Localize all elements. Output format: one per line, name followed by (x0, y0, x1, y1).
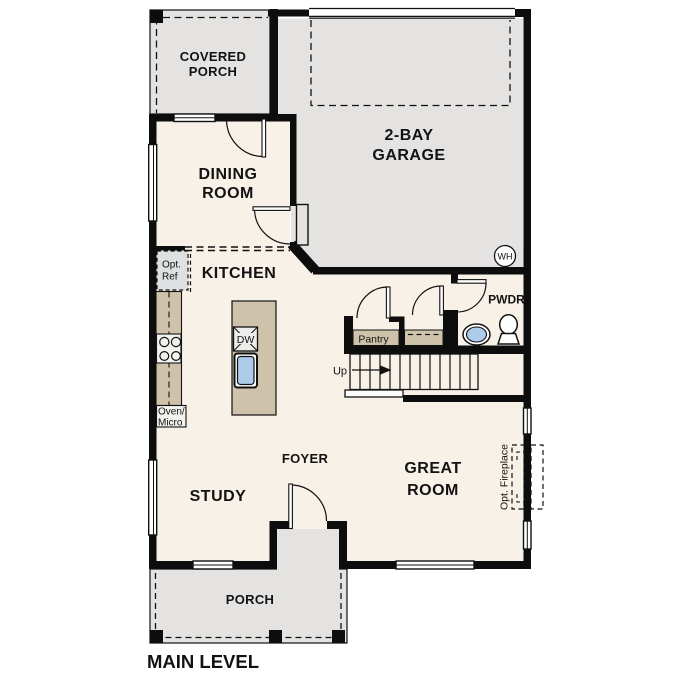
svg-text:COVERED: COVERED (180, 49, 246, 64)
svg-text:2-BAY: 2-BAY (384, 127, 433, 144)
svg-text:Pantry: Pantry (358, 334, 389, 346)
svg-text:Opt. Fireplace: Opt. Fireplace (499, 444, 511, 510)
svg-text:Up: Up (333, 366, 347, 378)
svg-text:STUDY: STUDY (190, 488, 247, 505)
svg-text:PORCH: PORCH (226, 592, 274, 607)
svg-text:Ref: Ref (162, 272, 178, 283)
svg-text:Opt.: Opt. (162, 260, 181, 271)
svg-text:GREAT: GREAT (404, 460, 461, 477)
svg-text:GARAGE: GARAGE (372, 147, 445, 164)
svg-text:KITCHEN: KITCHEN (202, 265, 277, 282)
svg-text:ROOM: ROOM (202, 185, 254, 202)
svg-text:FOYER: FOYER (282, 451, 329, 466)
svg-text:Oven/: Oven/ (158, 407, 185, 418)
svg-text:MAIN LEVEL: MAIN LEVEL (147, 651, 259, 672)
svg-text:DW: DW (237, 334, 255, 346)
svg-text:PWDR: PWDR (488, 293, 525, 307)
svg-text:ROOM: ROOM (407, 482, 459, 499)
svg-text:WH: WH (498, 252, 513, 262)
svg-text:PORCH: PORCH (189, 64, 237, 79)
svg-text:Micro: Micro (158, 418, 183, 429)
svg-text:DINING: DINING (199, 166, 258, 183)
